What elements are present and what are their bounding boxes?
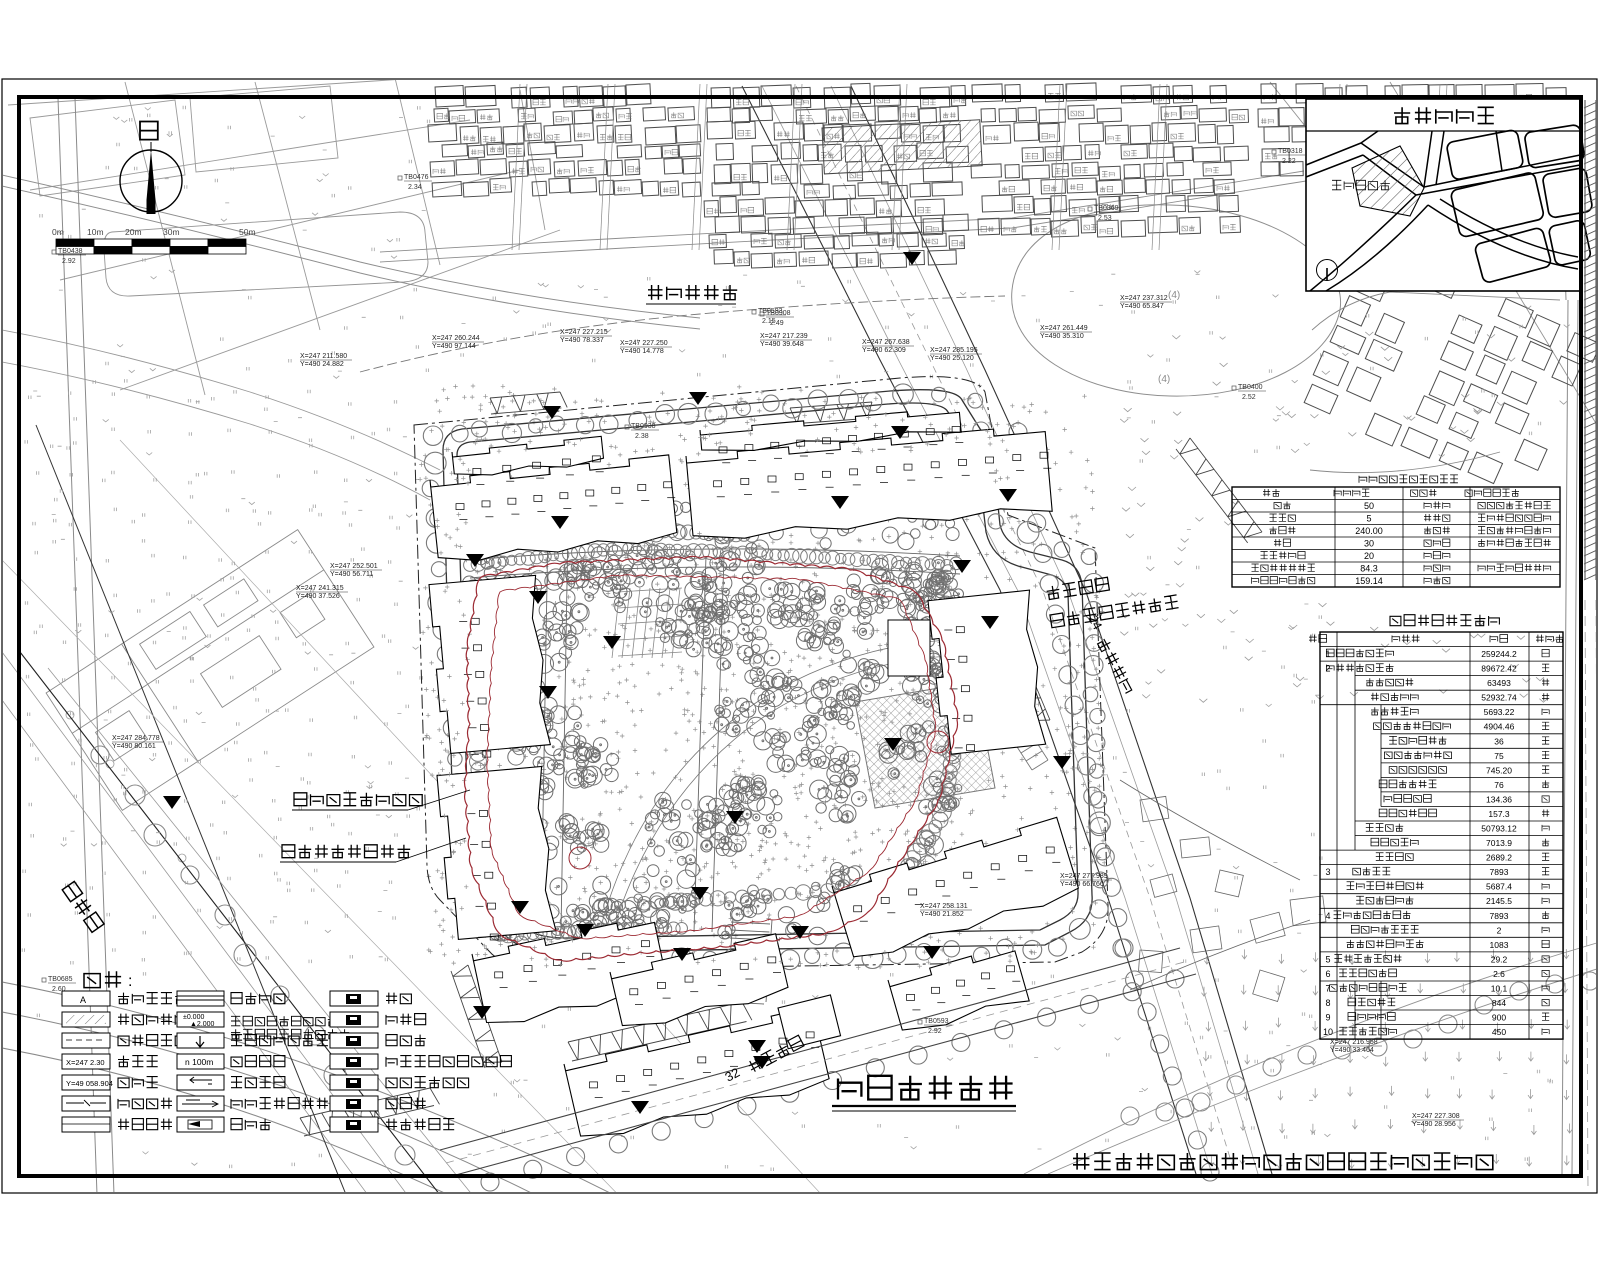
svg-text:2.49: 2.49 bbox=[770, 320, 784, 327]
svg-text:6: 6 bbox=[1325, 969, 1330, 979]
svg-text::: : bbox=[128, 973, 132, 990]
svg-text:29.2: 29.2 bbox=[1491, 954, 1508, 964]
svg-text:1083: 1083 bbox=[1490, 940, 1509, 950]
svg-text:450: 450 bbox=[1492, 1027, 1506, 1037]
svg-text:Y=490 97.144: Y=490 97.144 bbox=[432, 343, 476, 350]
svg-text:X=247 277.989: X=247 277.989 bbox=[1060, 873, 1108, 880]
svg-text:84.3: 84.3 bbox=[1360, 564, 1378, 574]
svg-text:134.36: 134.36 bbox=[1486, 794, 1512, 804]
svg-text:5687.4: 5687.4 bbox=[1486, 882, 1512, 892]
svg-text:TB0438: TB0438 bbox=[58, 248, 83, 255]
svg-text:2.52: 2.52 bbox=[1242, 394, 1256, 401]
svg-text:2689.2: 2689.2 bbox=[1486, 853, 1512, 863]
svg-text:2.34: 2.34 bbox=[408, 184, 422, 191]
svg-text:20m: 20m bbox=[125, 227, 142, 237]
svg-text:5: 5 bbox=[1325, 954, 1330, 964]
svg-text:4904.46: 4904.46 bbox=[1484, 722, 1515, 732]
svg-text:X=247 217.239: X=247 217.239 bbox=[760, 333, 808, 340]
svg-text:844: 844 bbox=[1492, 998, 1506, 1008]
svg-text:63493: 63493 bbox=[1487, 678, 1511, 688]
svg-text:X=247 2.30: X=247 2.30 bbox=[66, 1058, 105, 1067]
svg-text:Y=490 62.309: Y=490 62.309 bbox=[862, 347, 906, 354]
svg-text:2.6: 2.6 bbox=[1493, 969, 1505, 979]
svg-text:157.3: 157.3 bbox=[1488, 809, 1510, 819]
svg-text:52932.74: 52932.74 bbox=[1481, 693, 1517, 703]
svg-text:8: 8 bbox=[1325, 998, 1330, 1008]
svg-text:20: 20 bbox=[1364, 551, 1374, 561]
svg-text:TB0685: TB0685 bbox=[48, 976, 73, 983]
svg-text:Y=49 058.904: Y=49 058.904 bbox=[66, 1079, 113, 1088]
svg-text:Y=490 33.464: Y=490 33.464 bbox=[1330, 1047, 1374, 1054]
svg-text:X=247 237.312: X=247 237.312 bbox=[1120, 295, 1168, 302]
svg-text:Y=490 28.956: Y=490 28.956 bbox=[1412, 1121, 1456, 1128]
svg-text:X=247 227.250: X=247 227.250 bbox=[620, 340, 668, 347]
svg-text:n 100m: n 100m bbox=[185, 1057, 213, 1067]
svg-text:7013.9: 7013.9 bbox=[1486, 838, 1512, 848]
svg-text:50793.12: 50793.12 bbox=[1481, 824, 1517, 834]
svg-text:X=247 284.778: X=247 284.778 bbox=[112, 735, 160, 742]
svg-text:Y=490 66.766: Y=490 66.766 bbox=[1060, 881, 1104, 888]
svg-text:X=247 258.131: X=247 258.131 bbox=[920, 903, 968, 910]
svg-text:X=247 227.308: X=247 227.308 bbox=[1412, 1113, 1460, 1120]
svg-text:Y=490 78.337: Y=490 78.337 bbox=[560, 337, 604, 344]
svg-text:X=247 252.501: X=247 252.501 bbox=[330, 563, 378, 570]
svg-text:X=247 241.315: X=247 241.315 bbox=[296, 585, 344, 592]
svg-text:36: 36 bbox=[1494, 736, 1504, 746]
svg-text:89672.42: 89672.42 bbox=[1481, 664, 1517, 674]
svg-text:76: 76 bbox=[1494, 780, 1504, 790]
svg-text:5: 5 bbox=[1366, 514, 1371, 524]
svg-text:9: 9 bbox=[1325, 1013, 1330, 1023]
svg-text:900: 900 bbox=[1492, 1013, 1506, 1023]
svg-text:Y=490 21.852: Y=490 21.852 bbox=[920, 911, 964, 918]
svg-text:X=247 267.638: X=247 267.638 bbox=[862, 339, 910, 346]
svg-text:2: 2 bbox=[1497, 925, 1502, 935]
svg-text:Y=490 80.161: Y=490 80.161 bbox=[112, 743, 156, 750]
svg-text:TB0369: TB0369 bbox=[1094, 205, 1119, 212]
svg-text:0m: 0m bbox=[52, 227, 64, 237]
svg-text:2.92: 2.92 bbox=[928, 1028, 942, 1035]
svg-text:7893: 7893 bbox=[1490, 911, 1509, 921]
svg-text:(4): (4) bbox=[1168, 290, 1180, 301]
svg-text:Y=490 56.711: Y=490 56.711 bbox=[330, 571, 373, 578]
svg-text:7893: 7893 bbox=[1490, 867, 1509, 877]
svg-text:▲2.000: ▲2.000 bbox=[190, 1021, 215, 1028]
svg-text:X=247 227.215: X=247 227.215 bbox=[560, 329, 608, 336]
svg-text:Y=490 39.648: Y=490 39.648 bbox=[760, 341, 804, 348]
svg-text:2.92: 2.92 bbox=[62, 258, 76, 265]
svg-text:10m: 10m bbox=[87, 227, 104, 237]
svg-text:50m: 50m bbox=[239, 227, 256, 237]
svg-text:TB0476: TB0476 bbox=[404, 174, 429, 181]
svg-text:745.20: 745.20 bbox=[1486, 765, 1512, 775]
svg-text:Y=490 25.120: Y=490 25.120 bbox=[930, 355, 974, 362]
svg-text:Y=490 65.847: Y=490 65.847 bbox=[1120, 303, 1164, 310]
svg-text:X=247 216.958: X=247 216.958 bbox=[1330, 1039, 1378, 1046]
svg-text:Y=490 37.526: Y=490 37.526 bbox=[296, 593, 340, 600]
svg-text:50: 50 bbox=[1364, 501, 1374, 511]
svg-text:2.38: 2.38 bbox=[635, 433, 649, 440]
svg-text:5693.22: 5693.22 bbox=[1484, 707, 1515, 717]
svg-text:X=247 260.244: X=247 260.244 bbox=[432, 335, 480, 342]
svg-text:10: 10 bbox=[1323, 1027, 1333, 1037]
svg-text:259244.2: 259244.2 bbox=[1481, 649, 1517, 659]
svg-text:4: 4 bbox=[1325, 911, 1330, 921]
svg-text:(4): (4) bbox=[1158, 374, 1170, 385]
svg-text:Y=490 35.310: Y=490 35.310 bbox=[1040, 333, 1084, 340]
svg-text:3: 3 bbox=[1325, 867, 1330, 877]
svg-text:X=247 211.580: X=247 211.580 bbox=[300, 353, 347, 360]
svg-text:TB0400: TB0400 bbox=[1238, 384, 1263, 391]
svg-text:A: A bbox=[80, 995, 86, 1005]
svg-text:2.60: 2.60 bbox=[52, 986, 66, 993]
svg-text:TB0938: TB0938 bbox=[631, 423, 656, 430]
svg-text:TB0908: TB0908 bbox=[766, 310, 791, 317]
svg-text:159.14: 159.14 bbox=[1355, 576, 1383, 586]
svg-text:2.22: 2.22 bbox=[1282, 158, 1296, 165]
svg-text:Y=490 14.778: Y=490 14.778 bbox=[620, 348, 664, 355]
svg-text:30: 30 bbox=[1364, 539, 1374, 549]
svg-text:10.1: 10.1 bbox=[1491, 984, 1508, 994]
svg-text:75: 75 bbox=[1494, 751, 1504, 761]
svg-text:2145.5: 2145.5 bbox=[1486, 896, 1512, 906]
svg-text:TB0593: TB0593 bbox=[924, 1018, 949, 1025]
svg-text:2.53: 2.53 bbox=[1098, 215, 1112, 222]
svg-text:240.00: 240.00 bbox=[1355, 526, 1383, 536]
svg-text:Y=490 24.882: Y=490 24.882 bbox=[300, 361, 344, 368]
svg-text:TB0318: TB0318 bbox=[1278, 148, 1303, 155]
svg-text:30m: 30m bbox=[163, 227, 180, 237]
svg-text:±0.000: ±0.000 bbox=[183, 1014, 204, 1021]
svg-text:X=247 285.195: X=247 285.195 bbox=[930, 347, 978, 354]
svg-text:X=247 261.449: X=247 261.449 bbox=[1040, 325, 1088, 332]
